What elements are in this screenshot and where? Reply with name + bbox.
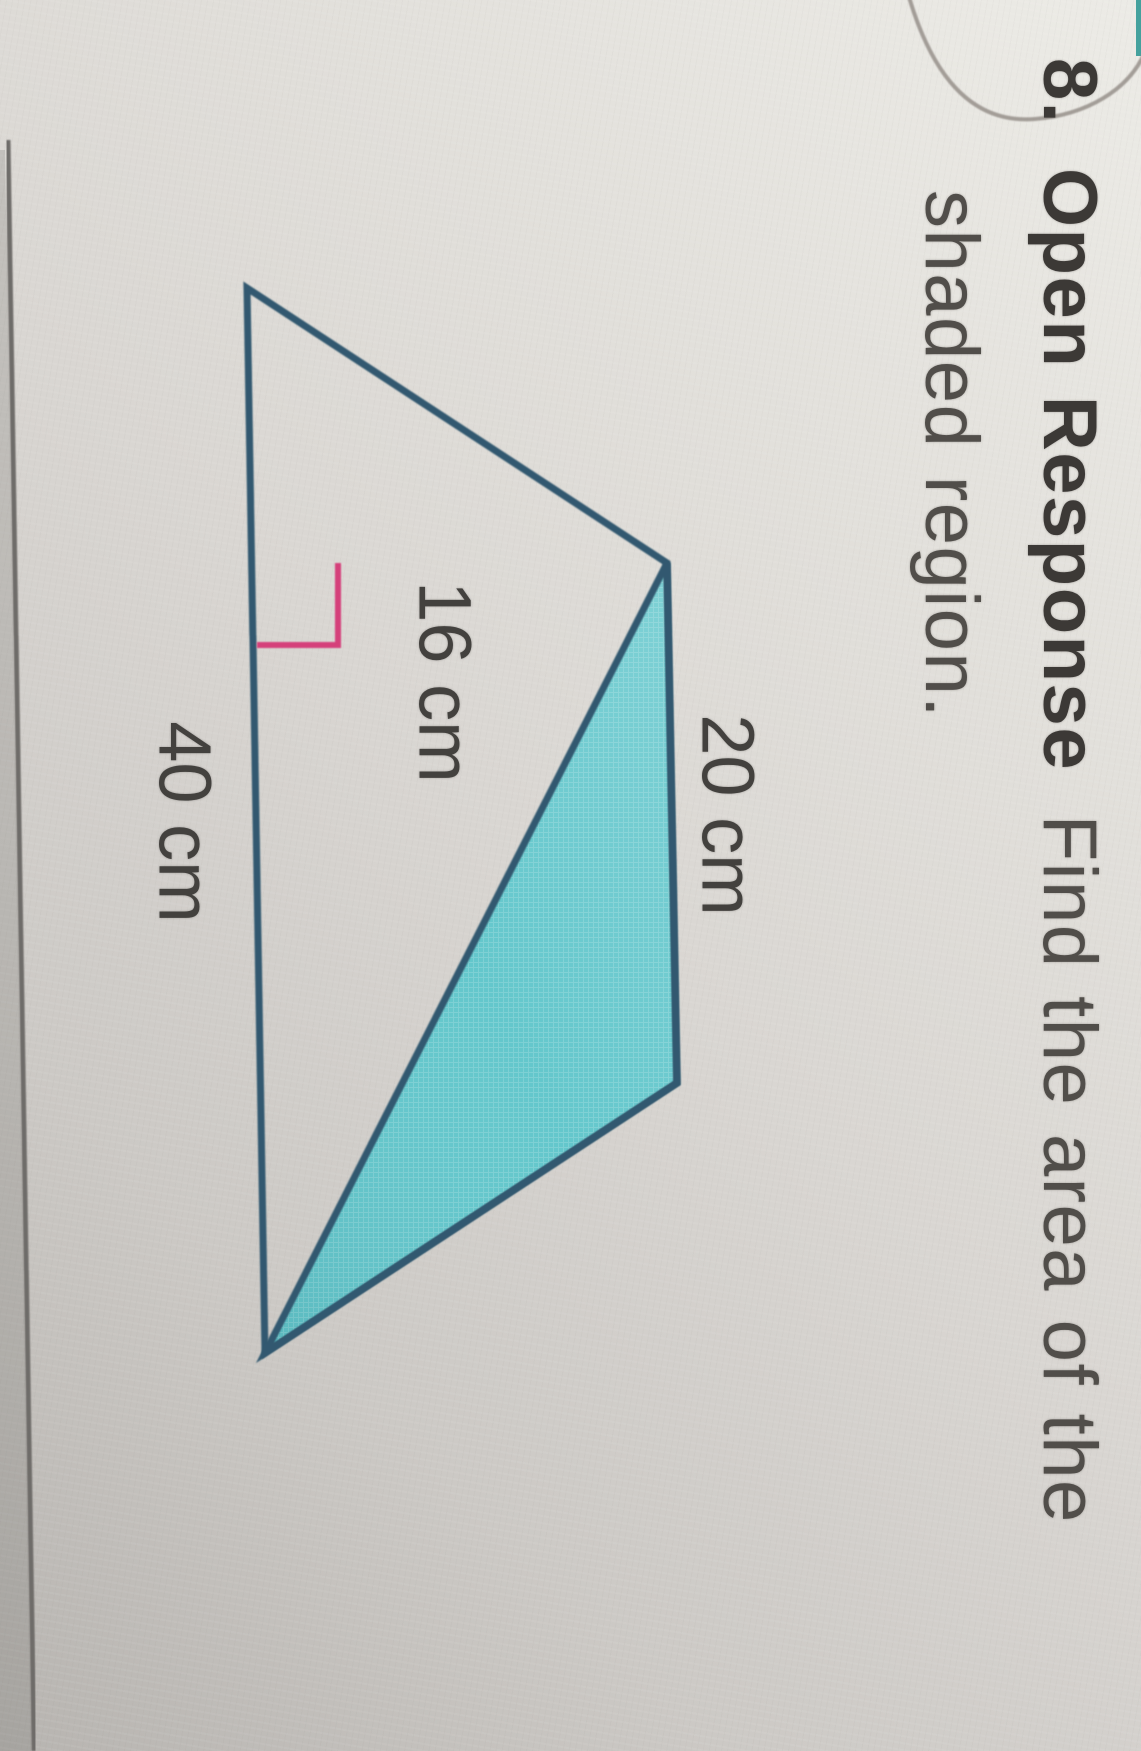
label-top-side: 20 cm — [686, 714, 771, 916]
right-angle-mark — [257, 563, 338, 645]
problem-title-line1: 8. Open Response Find the area of the — [1026, 58, 1113, 1524]
photo-of-textbook-page: 8. Open Response Find the area of the sh… — [0, 0, 1141, 1751]
problem-prompt: Find the area of the — [1027, 815, 1112, 1524]
problem-number: 8. — [1027, 58, 1112, 124]
problem-type-label: Open Response — [1027, 168, 1112, 771]
problem-title-line2: shaded region. — [908, 190, 995, 719]
page-edge-shadow — [0, 150, 31, 1751]
teal-header-edge — [1136, 0, 1141, 56]
page-rotated-content: 8. Open Response Find the area of the sh… — [0, 0, 1141, 1751]
label-height: 16 cm — [403, 581, 488, 783]
label-base: 40 cm — [143, 721, 228, 923]
